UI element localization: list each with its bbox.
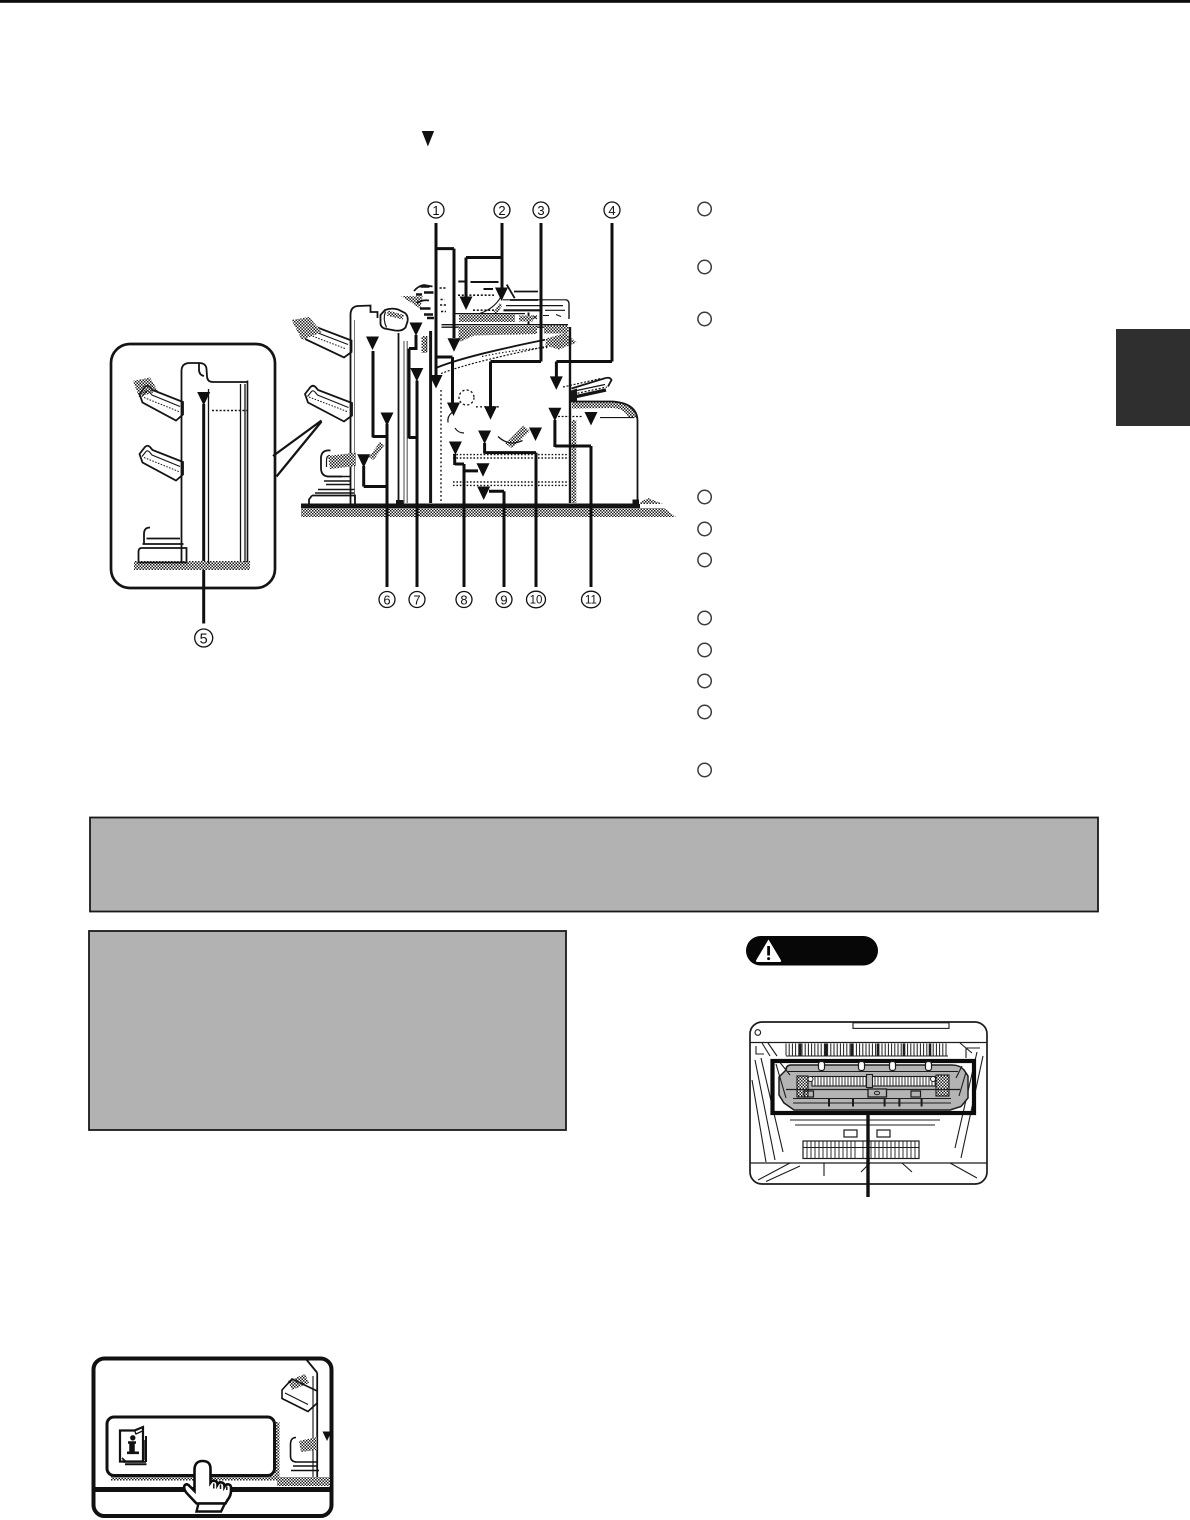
svg-text:2: 2 — [498, 203, 505, 218]
svg-text:5: 5 — [200, 631, 208, 647]
svg-text:1: 1 — [432, 203, 439, 218]
svg-text:8: 8 — [460, 592, 467, 607]
svg-text:4: 4 — [608, 203, 615, 218]
svg-text:11: 11 — [585, 595, 597, 607]
svg-text:6: 6 — [383, 592, 390, 607]
svg-text:10: 10 — [530, 595, 543, 607]
svg-text:9: 9 — [500, 592, 507, 607]
svg-text:7: 7 — [413, 592, 420, 607]
svg-text:3: 3 — [537, 203, 544, 218]
